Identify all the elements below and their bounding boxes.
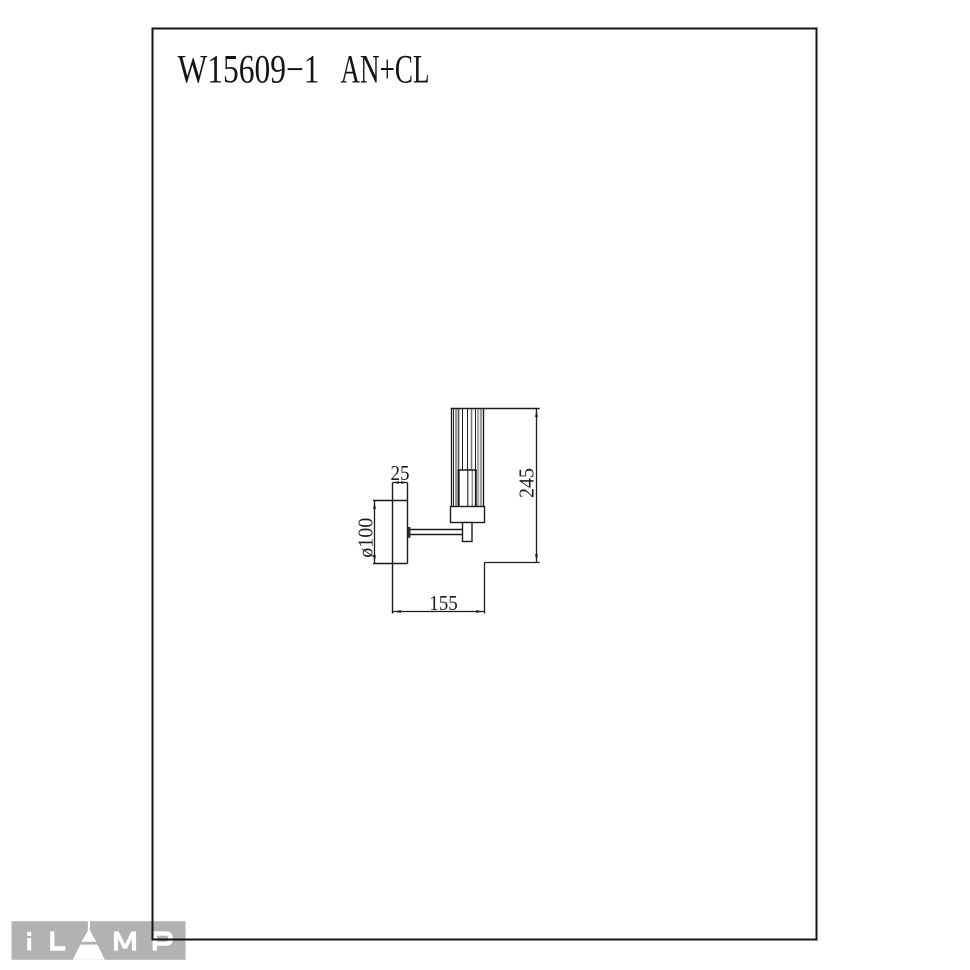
svg-text:AN+CL: AN+CL [341, 47, 430, 92]
svg-text:155: 155 [429, 591, 458, 615]
svg-text:25: 25 [391, 461, 410, 485]
svg-text:W15609−1: W15609−1 [178, 47, 320, 92]
svg-text:245: 245 [515, 468, 539, 498]
svg-text:ø100: ø100 [353, 518, 377, 558]
